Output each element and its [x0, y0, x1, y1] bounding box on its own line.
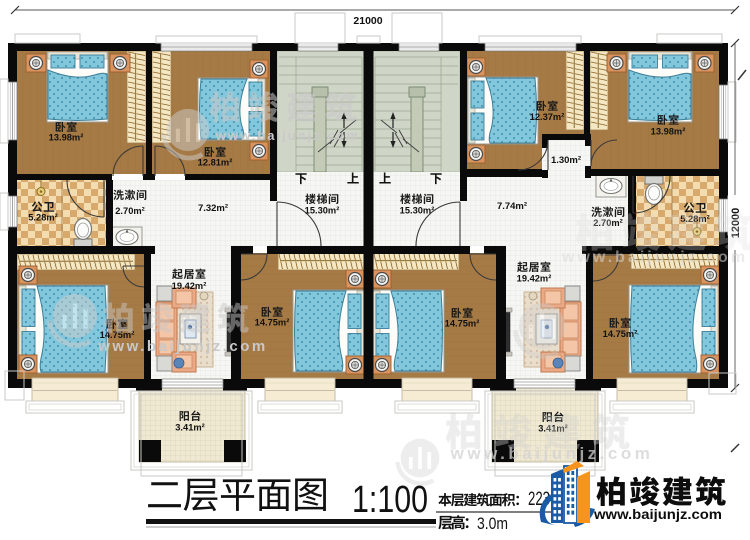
svg-text:14.75m²: 14.75m²: [445, 319, 480, 329]
svg-text:3.0m: 3.0m: [477, 514, 508, 533]
svg-text:19.42m²: 19.42m²: [517, 274, 552, 284]
svg-text:2.70m²: 2.70m²: [115, 206, 144, 216]
svg-text:12.37m²: 12.37m²: [530, 112, 565, 122]
svg-text:www.baijunjz.com: www.baijunjz.com: [561, 249, 748, 266]
svg-text:14.75m²: 14.75m²: [255, 318, 290, 328]
svg-text:15.30m²: 15.30m²: [400, 206, 435, 216]
svg-text:7.74m²: 7.74m²: [497, 201, 527, 212]
svg-text:www.baijunjz.com: www.baijunjz.com: [97, 338, 267, 355]
svg-text:19.42m²: 19.42m²: [172, 281, 207, 291]
svg-text:5.28m²: 5.28m²: [28, 213, 57, 223]
svg-text:12.81m²: 12.81m²: [198, 158, 233, 168]
svg-text:3.41m²: 3.41m²: [175, 423, 204, 433]
svg-text:www.baijunjz.com: www.baijunjz.com: [593, 506, 722, 522]
svg-text:13.98m²: 13.98m²: [49, 133, 84, 143]
svg-text:13.98m²: 13.98m²: [651, 127, 686, 137]
svg-text:7.32m²: 7.32m²: [198, 203, 228, 214]
svg-text:21000: 21000: [353, 15, 382, 27]
svg-text:14.75m²: 14.75m²: [603, 329, 638, 339]
svg-text:1:100: 1:100: [352, 479, 428, 521]
svg-text:www.baijunjz.com: www.baijunjz.com: [450, 444, 654, 463]
svg-text:www.baijunjz.com: www.baijunjz.com: [215, 128, 360, 143]
svg-text:15.30m²: 15.30m²: [305, 206, 340, 216]
svg-text:1.30m²: 1.30m²: [551, 155, 581, 166]
